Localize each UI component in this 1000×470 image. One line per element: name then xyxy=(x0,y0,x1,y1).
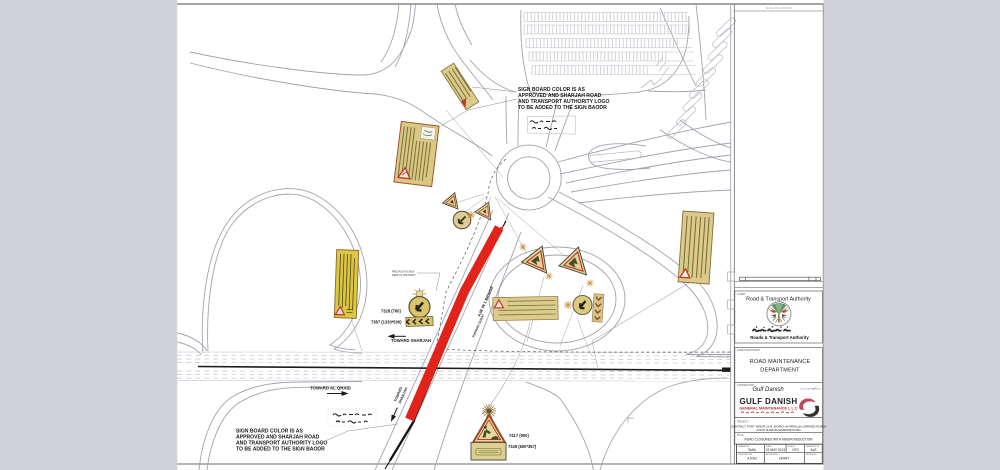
svg-text:DRAFT: DRAFT xyxy=(779,457,790,461)
svg-text:7328 (760): 7328 (760) xyxy=(381,309,401,314)
svg-text:7417 (900): 7417 (900) xyxy=(509,433,529,438)
svg-text:ALE: ALE xyxy=(810,448,816,452)
svg-text:REVISION: REVISION xyxy=(806,454,817,456)
svg-text:PROJECT: PROJECT xyxy=(737,420,749,423)
svg-text:01 MAY 2013: 01 MAY 2013 xyxy=(766,448,785,452)
svg-text:GENERAL MAINTENANCE L.L.C: GENERAL MAINTENANCE L.L.C xyxy=(739,407,797,411)
svg-text:KEEP TO THE RIGHT: KEEP TO THE RIGHT xyxy=(392,274,416,277)
svg-text:APPROVED: APPROVED xyxy=(766,453,779,456)
svg-text:ROAD MAINTENANCE: ROAD MAINTENANCE xyxy=(750,359,811,365)
svg-text:TO BE ADDED TO THE SIGN BAODR: TO BE ADDED TO THE SIGN BAODR xyxy=(236,447,325,453)
svg-text:AL QULAYAA JUNCTION: AL QULAYAA JUNCTION xyxy=(766,7,792,10)
svg-text:ASSET MAINT DEPT: ASSET MAINT DEPT xyxy=(737,349,760,352)
svg-text:CLIENT: CLIENT xyxy=(737,293,746,296)
svg-text:TOWARD AL QHAID: TOWARD AL QHAID xyxy=(310,386,351,391)
svg-text:A DAD: A DAD xyxy=(747,457,757,461)
svg-text:GULF DANISH: GULF DANISH xyxy=(740,397,798,406)
svg-text:7387 (1330*500): 7387 (1330*500) xyxy=(371,320,402,325)
svg-text:GULF DANISH GM LLC: GULF DANISH GM LLC xyxy=(800,388,824,391)
svg-text:NTS: NTS xyxy=(792,448,798,452)
svg-text:AT/ON SHARJAH EMIRATE ROAD: AT/ON SHARJAH EMIRATE ROAD xyxy=(756,428,800,432)
svg-text:DEPARTMENT: DEPARTMENT xyxy=(760,368,800,374)
svg-text:Roads & Transport Authority: Roads & Transport Authority xyxy=(750,335,809,340)
svg-text:TITLE: TITLE xyxy=(737,434,744,437)
svg-text:7349 (600*367): 7349 (600*367) xyxy=(508,444,537,449)
svg-text:TOWARD SHARJAH: TOWARD SHARJAH xyxy=(391,338,431,343)
svg-text:SMAI: SMAI xyxy=(748,448,756,452)
svg-text:Gulf Danish: Gulf Danish xyxy=(752,387,784,393)
svg-text:TO BE ADDED TO THE SIGN BAODR: TO BE ADDED TO THE SIGN BAODR xyxy=(518,105,607,111)
svg-text:ROAD CLOSURES WITH MINOR REDUC: ROAD CLOSURES WITH MINOR REDUCTION xyxy=(744,438,813,442)
